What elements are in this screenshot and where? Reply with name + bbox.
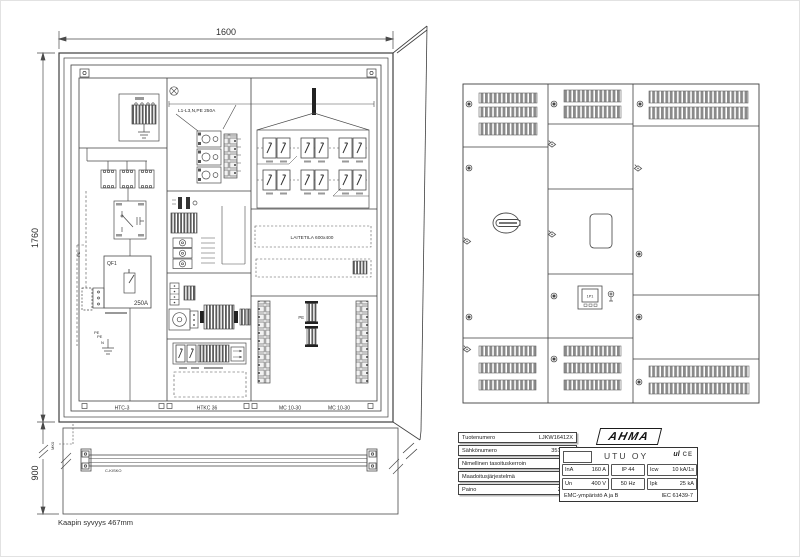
terminal-strip-left — [258, 301, 270, 383]
un-value: 400 V — [591, 481, 606, 487]
ip-rating: IP 44 — [622, 467, 635, 473]
ip-cell: IP 44 — [611, 464, 645, 476]
meter-label: 1P1 — [587, 295, 594, 299]
manufacturer-name: UTU OY — [604, 451, 648, 461]
frequency: 50 Hz — [621, 481, 636, 487]
section-label-bar: HTC-3 HTKC 36 MC 10-30 MC 10-30 — [82, 404, 373, 412]
un-label: Un — [565, 481, 572, 487]
plinth-area: C-KISKO MK0 — [50, 422, 403, 514]
window-cutout — [590, 214, 612, 248]
incoming-bus: L1-L3,N,PE 250A — [169, 87, 374, 131]
cabinet-frame — [59, 26, 427, 459]
table-row: Tuotenumero LJKW16412X — [458, 432, 577, 443]
ipk-cell: Ipk 25 kA — [647, 478, 697, 490]
outgoing-breaker-field — [257, 88, 369, 208]
ina-value: 160 A — [592, 467, 606, 473]
icw-label: Icw — [650, 467, 658, 473]
ground-icon — [138, 124, 150, 138]
qf1-rating: 250A — [134, 301, 148, 307]
rating-plate: UTU OY ul CE InA 160 A IP 44 Icw 10 kA/1… — [559, 447, 698, 502]
front-view-panel: 1P1 — [463, 84, 759, 403]
row-label: Maadoitusjärjestelmä — [462, 474, 515, 480]
vent-grille — [479, 90, 749, 394]
c-rail: C-KISKO — [81, 449, 377, 473]
section-label: HTC-3 — [115, 406, 130, 412]
meter-section — [171, 197, 245, 269]
brand-name: AHMA — [607, 431, 650, 443]
section-label: MC 10-30 — [279, 406, 301, 412]
contactor-group — [87, 148, 154, 188]
icw-value: 10 kA/1s — [672, 467, 694, 473]
section-label: MC 10-30 — [328, 406, 350, 412]
mk-callout: MK0 — [50, 422, 73, 450]
pe-label: PE — [97, 334, 103, 339]
un-cell: Un 400 V — [562, 478, 609, 490]
row-label: Paino — [462, 487, 476, 493]
pe-terminals: PE PE — [76, 251, 104, 335]
dim-width-label: 1600 — [216, 27, 236, 37]
surge-arrester — [119, 94, 159, 141]
neutral-ground: N PE — [97, 308, 130, 401]
pe-busbar: PE — [298, 301, 318, 347]
row-label: Sähkönumero — [462, 448, 497, 454]
iec-standard: IEC 61439-7 — [662, 493, 693, 499]
bus-label: L1-L3,N,PE 250A — [178, 108, 216, 114]
row-label: Nimellinen tasoituskerroin — [462, 461, 526, 467]
dim-height-label: 1760 — [30, 228, 40, 248]
depth-note: Kaapin syvyys 467mm — [58, 518, 133, 527]
dim-plinth-label: 900 — [30, 465, 40, 480]
fuse-switch-group — [197, 131, 241, 183]
din-rail-group — [173, 343, 246, 397]
c-rail-label: C-KISKO — [105, 468, 121, 473]
qf1-breaker-box: QF1 250A — [104, 256, 151, 314]
laitetila-zone: LAITETILA 600x400 — [255, 226, 371, 277]
ul-mark-icon: ul — [673, 451, 679, 458]
dimension-height: 1760 — [30, 53, 55, 422]
ipk-label: Ipk — [650, 481, 657, 487]
brand-logo: AHMA — [596, 428, 662, 445]
n-label: N — [101, 340, 104, 345]
laitetila-label: LAITETILA 600x400 — [291, 235, 334, 241]
qf1-label: QF1 — [107, 261, 117, 267]
energy-meter: 1P1 — [578, 286, 602, 309]
row-label: Tuotenumero — [462, 435, 495, 441]
serial-box — [563, 451, 592, 463]
hz-cell: 50 Hz — [611, 478, 645, 490]
row-value: LJKW16412X — [539, 435, 573, 441]
emc-note: EMC-ympäristö A ja B — [564, 493, 618, 499]
pe-label: PE — [298, 315, 304, 320]
door-lock-icon — [463, 141, 641, 353]
dimension-plinth: 900 — [30, 422, 59, 514]
corner-plate — [80, 69, 376, 77]
blueprint-canvas: 1600 1760 900 Kaapin syvyys 467mm — [0, 0, 800, 557]
section-label: HTKC 36 — [197, 406, 218, 412]
main-switch-handle-icon — [493, 213, 520, 233]
mk-label: MK0 — [50, 441, 55, 450]
indicator-light-icon — [608, 291, 614, 301]
icw-cell: Icw 10 kA/1s — [647, 464, 697, 476]
ina-label: InA — [565, 467, 573, 473]
main-switch — [114, 188, 146, 256]
cable-terminal-section: PE — [258, 301, 368, 383]
pe-label: PE — [76, 251, 81, 257]
ipk-value: 25 kA — [680, 481, 694, 487]
terminal-strip-right — [356, 301, 368, 383]
certification-marks: ul CE — [673, 451, 693, 458]
terminal-section — [169, 283, 250, 330]
ina-cell: InA 160 A — [562, 464, 609, 476]
pe-wiring — [77, 191, 86, 346]
dimension-width: 1600 — [59, 27, 393, 49]
ce-mark-icon: CE — [683, 452, 693, 458]
door-outline — [393, 26, 427, 459]
